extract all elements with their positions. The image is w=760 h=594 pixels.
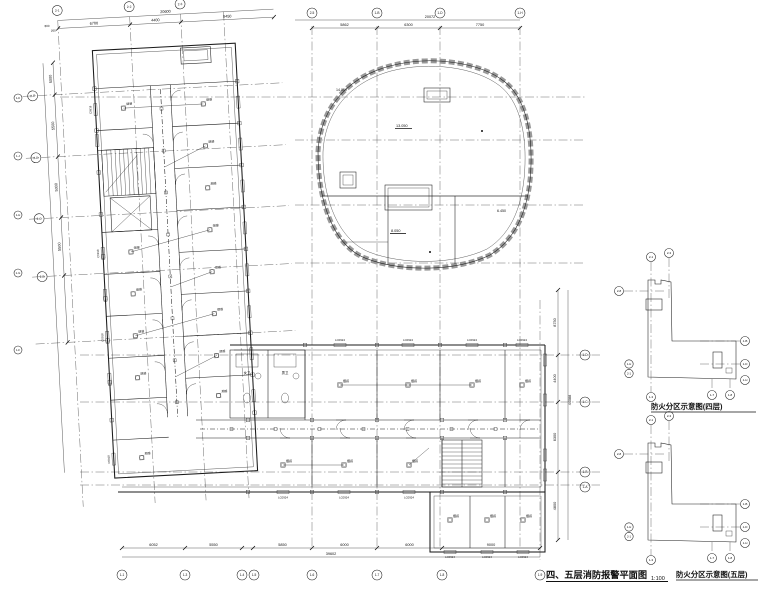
smoke-detector-label: 烟感 <box>217 306 223 311</box>
grid-bubble-label: 2-D <box>33 156 39 160</box>
zone-notch <box>726 368 732 373</box>
door-arc <box>175 174 186 185</box>
room-label: 男卫 <box>282 370 289 375</box>
stair-tread <box>132 149 134 195</box>
grid-line-skewed <box>181 14 206 500</box>
smoke-detector-label: 烟感 <box>412 458 418 463</box>
grid-bubble-label: 1-B <box>375 11 380 15</box>
fire-alarm-trunk <box>160 89 177 417</box>
stair-tread <box>119 149 121 195</box>
dimension-value: 6000 <box>340 543 348 547</box>
grid-bubble-label: 1-B <box>743 339 748 343</box>
dimension-value: 250 <box>51 29 57 33</box>
grid-bubble-label: 2-C <box>36 217 42 221</box>
dimension-value: 5862 <box>340 23 348 27</box>
smoke-detector-label: 烟感 <box>136 286 142 291</box>
top-left-dimension-chain: 206006700440084508002502-12-22-3 <box>43 0 276 33</box>
smoke-detector-label: 烟感 <box>206 96 212 101</box>
smoke-detector-icon <box>131 292 135 296</box>
sink <box>255 373 261 379</box>
fire-diagram-4f-title: 防火分区示意图(四层) <box>651 402 723 411</box>
skewed-grid <box>19 9 304 509</box>
north-wing-plan: 烟感烟感烟感烟感烟感烟感烟感烟感烟感烟感烟感烟感烟感烟感C0918C0918C0… <box>85 43 259 478</box>
grid-bubble-label: 2-3 <box>667 251 672 255</box>
partition <box>106 313 162 316</box>
room-label: 女卫 <box>244 370 251 375</box>
elevation-label: 6.450 <box>497 209 506 213</box>
smoke-detector-label: 烟感 <box>475 378 481 383</box>
bathroom-block <box>230 350 305 418</box>
grid-bubble-label: 1-D <box>437 11 443 15</box>
grid-bubble-label: 2-E <box>30 94 35 98</box>
dimension-value: 4400 <box>553 374 557 382</box>
smoke-detector-icon <box>212 311 217 316</box>
grid-bubble-label: 1-6 <box>310 573 315 577</box>
smoke-detector-icon <box>216 393 220 397</box>
smoke-detector-icon <box>139 455 144 460</box>
grid-bubble-label: 1-H <box>16 213 21 217</box>
partition <box>183 333 250 337</box>
dimension-value: 6052 <box>149 543 157 547</box>
smoke-detector-label: 烟感 <box>490 513 496 518</box>
smoke-detector-icon <box>214 353 219 358</box>
stair-marker <box>646 299 662 310</box>
grid-bubble-label: 2-B <box>40 275 45 279</box>
smoke-detector-label: 烟感 <box>144 450 150 455</box>
stair-tread <box>107 150 109 196</box>
grid-bubble-label: 1-5 <box>252 573 257 577</box>
stair-tread <box>123 149 125 195</box>
door-arc <box>179 258 190 269</box>
roof-hatch-box <box>340 172 356 188</box>
grid-bubble-label: 1-8 <box>440 573 445 577</box>
grid-bubble-label: 1-F <box>16 348 20 352</box>
grid-bubble-label: 2-1 <box>627 535 631 539</box>
dimension-value: 4800 <box>553 502 557 510</box>
roof-drain <box>481 130 483 132</box>
door-arc <box>182 300 193 311</box>
door-arc <box>470 428 480 438</box>
grid-bubble-label: 1-K <box>16 96 20 100</box>
door-arc <box>150 277 161 288</box>
smoke-detector-icon <box>216 393 221 398</box>
smoke-detector-icon <box>520 383 524 387</box>
grid-bubble-label: 2-5 <box>310 11 315 15</box>
roof-elevation-labels: 14.050 13.050 8.050 6.450 <box>336 88 506 234</box>
door-arc <box>143 134 154 145</box>
smoke-detector-label: 烟感 <box>347 458 353 463</box>
left-dimension-chain: 50005500500055002-E2-D2-C2-B <box>26 61 77 474</box>
zone-notch <box>726 531 732 536</box>
grid-bubble-label: 2-1 <box>649 255 654 259</box>
door-arc <box>171 90 182 101</box>
dimension-overall: 20072 <box>425 15 436 19</box>
grid-bubble-label: 1-9 <box>538 573 543 577</box>
grid-bubble-label: 1-7 <box>375 573 380 577</box>
smoke-detector-label: 烟感 <box>213 222 219 227</box>
smoke-detector-label: 烟感 <box>453 513 459 518</box>
dimension-value: 5550 <box>209 543 217 547</box>
dimension-value: 4400 <box>151 18 160 22</box>
smoke-detector-label: 烟感 <box>210 180 216 185</box>
partition <box>113 437 169 440</box>
smoke-detector-icon <box>448 518 452 522</box>
grid-bubbles: 2-51-B1-D1-H1-11-31-41-51-61-71-81-91-K1… <box>14 8 590 580</box>
partition <box>97 128 153 131</box>
grid-bubble-label: 1-3 <box>649 558 654 562</box>
grid-bubble-label: 2-2 <box>127 5 132 9</box>
dimension-value: 5500 <box>57 242 61 251</box>
door-arc <box>173 132 184 143</box>
grid-bubble-label: 1-D <box>582 353 588 357</box>
partition <box>108 355 164 358</box>
window-label: LC0924 <box>339 496 349 500</box>
smoke-detector-icon <box>485 518 489 522</box>
stair-tread <box>144 148 146 194</box>
smoke-detector-label: 烟感 <box>140 370 146 375</box>
smoke-detector-label: 烟感 <box>411 378 417 383</box>
dimension-value: 5000 <box>49 75 53 84</box>
door-arc <box>520 420 530 430</box>
grid-line-skewed <box>29 206 289 220</box>
door-arc <box>177 216 188 227</box>
roof-access-shaft <box>184 50 208 61</box>
fire-diagram-4f: 2-12-32-81-H2-11-31-71-81-B1-D1-H <box>615 249 750 402</box>
grid-bubble-label: 1-H <box>743 541 748 545</box>
dimension-value: 5500 <box>51 121 55 130</box>
grid-bubble-label: 1-1 <box>120 573 125 577</box>
toilet <box>282 393 289 403</box>
grid-bubble-label: 1-8 <box>728 393 733 397</box>
roof-hatch-box <box>424 88 450 102</box>
window-label: LC0924 <box>335 338 345 342</box>
stair-marker <box>713 352 722 368</box>
grid-bubble-label: 1-H <box>743 378 748 382</box>
smoke-detector-icon <box>485 518 489 522</box>
smoke-detector-label: 烟感 <box>219 348 225 353</box>
window-label: LC0924 <box>403 338 413 342</box>
window-label: C0918 <box>88 105 92 114</box>
dimension-value: 6700 <box>90 21 99 25</box>
grid-bubble-label: 1-3 <box>183 573 188 577</box>
grid-bubble-label: 2-8 <box>617 452 622 456</box>
dimension-value: 6000 <box>405 543 413 547</box>
door-arc <box>340 428 350 438</box>
grid-bubble-label: 1-H <box>627 525 632 529</box>
stair-tread <box>128 149 130 195</box>
window-label: LC0924 <box>278 496 288 500</box>
dimension-value: 6300 <box>404 23 412 27</box>
smoke-detector-label: 烟感 <box>138 328 144 333</box>
grid-bubble-label: 2-3 <box>667 414 672 418</box>
grid-line-skewed <box>26 145 286 159</box>
grid-bubble-label: 2-1 <box>627 372 631 376</box>
smoke-detector-icon <box>448 518 452 522</box>
window-label: LC0924 <box>517 338 527 342</box>
fire-diagram-5f: 2-12-32-81-H2-11-31-71-81-B1-D1-H <box>615 412 750 565</box>
stair-tread <box>115 150 117 196</box>
smoke-detector-icon <box>140 456 144 460</box>
sheet-title: 四、五层消防报警平面图 <box>546 569 647 580</box>
drawing-sheet: 烟感烟感烟感烟感烟感烟感烟感烟感烟感烟感烟感烟感烟感烟感C0918C0918C0… <box>0 0 760 594</box>
door-arc <box>406 428 416 438</box>
grid-bubble-label: 1-3 <box>649 395 654 399</box>
grid-bubble-label: 1-H <box>627 362 632 366</box>
roof-hatch-box <box>343 175 353 185</box>
title-block: 四、五层消防报警平面图 1:100 防火分区示意图(五层) 防火分区示意图(四层… <box>546 402 758 582</box>
grid-bubble-label: 1-A <box>583 485 589 489</box>
grid-bubble-label: 1-C <box>582 400 588 404</box>
dimension-value: 5000 <box>54 183 58 192</box>
roof-interior <box>318 60 534 270</box>
smoke-detector-label: 烟感 <box>343 378 349 383</box>
roof-outline <box>318 61 531 268</box>
dimension-value: 8450 <box>223 14 232 18</box>
fire-diagram-5f-title: 防火分区示意图(五层) <box>676 570 748 579</box>
dimension-value: 800 <box>44 24 50 28</box>
grid-bubble-label: 1-J <box>16 154 20 158</box>
smoke-detector-label: 烟感 <box>208 138 214 143</box>
shower-stall <box>274 354 296 367</box>
shower-stall <box>236 354 258 367</box>
stair-marker <box>646 462 662 473</box>
grid-line-skewed <box>32 264 292 278</box>
dimension-overall: 39602 <box>326 552 337 556</box>
door-arc <box>184 342 195 353</box>
dimension-value: 9000 <box>487 543 495 547</box>
window-label: C0918 <box>100 333 104 342</box>
dimension-overall: 20600 <box>160 10 171 15</box>
smoke-detector-label: 烟感 <box>286 458 292 463</box>
grid-bubble-label: 2-1 <box>55 9 60 13</box>
elevation-label: 8.050 <box>391 229 401 233</box>
grid-bubble-label: 2-3 <box>178 2 183 6</box>
smoke-detector-icon <box>205 186 210 191</box>
smoke-detector-icon <box>210 269 215 274</box>
partition <box>111 397 167 400</box>
smoke-detector-label: 烟感 <box>134 244 140 249</box>
smoke-detector-icon <box>521 518 525 522</box>
stair-tread <box>140 148 142 194</box>
door-arc <box>468 420 478 430</box>
detector-wiring <box>283 385 472 465</box>
door-arc <box>336 420 346 430</box>
grid-bubble-label: 2-8 <box>617 289 622 293</box>
grid-bubble-label: 1-7 <box>710 556 715 560</box>
stair-marker <box>713 515 722 531</box>
dimension-chains: 206006700440084508002502-12-22-320072586… <box>26 0 572 557</box>
grid-bubble-label: 1-D <box>743 525 749 529</box>
grid-line-skewed <box>36 330 296 344</box>
grid-bubble-label: 1-D <box>743 362 749 366</box>
window-label: LC0924 <box>467 338 477 342</box>
cad-canvas: 烟感烟感烟感烟感烟感烟感烟感烟感烟感烟感烟感烟感烟感烟感C0918C0918C0… <box>0 0 760 594</box>
smoke-detector-icon <box>135 375 140 380</box>
grid-bubble-label: 2-1 <box>649 418 654 422</box>
door-arc <box>157 403 168 414</box>
grid-bubble-label: 1-G <box>16 271 21 275</box>
roof-equipment-box <box>385 185 432 210</box>
door-arc <box>155 361 166 372</box>
dimension-value: 6300 <box>553 433 557 441</box>
smoke-detector-label: 烟感 <box>215 264 221 269</box>
smoke-detector-icon <box>135 376 139 380</box>
dimension-value: 8750 <box>553 318 557 326</box>
sink <box>293 373 299 379</box>
south-wing-plan: 女卫男卫烟感烟感烟感烟感烟感烟感烟感烟感LC0924烟感LC0924烟感LC09… <box>118 338 547 559</box>
smoke-detector-label: 烟感 <box>221 388 227 393</box>
stair-arrow <box>104 154 140 192</box>
smoke-detector-label: 烟感 <box>526 513 532 518</box>
smoke-detector-icon <box>521 518 525 522</box>
roof-shingle-ring <box>318 61 531 268</box>
dimension-value: 7750 <box>476 23 484 27</box>
smoke-detector-label: 烟感 <box>126 101 132 106</box>
grid-bubble-label: 1-7 <box>710 393 715 397</box>
window-label: LC0924 <box>404 496 414 500</box>
partition <box>94 81 237 88</box>
window-label: C0918 <box>96 249 100 258</box>
grid-line-skewed <box>58 20 83 506</box>
dimension-overall: 44088 <box>568 395 572 406</box>
roof-drain <box>429 251 431 253</box>
roof-plan <box>318 60 534 270</box>
dimension-value: 5850 <box>278 543 286 547</box>
elevation-label: 14.050 <box>336 88 347 92</box>
grid-bubble-label: 1-4 <box>240 573 245 577</box>
elevation-label: 13.050 <box>396 124 408 128</box>
roof-equipment-box <box>388 188 429 207</box>
grid-bubble-label: 1-B <box>583 470 588 474</box>
smoke-detector-icon <box>206 186 210 190</box>
grid-bubble-label: 1-H <box>517 11 523 15</box>
stair-tread <box>111 150 113 196</box>
stair-tread <box>149 148 151 194</box>
grid-bubble-label: 1-8 <box>728 556 733 560</box>
grid-line-skewed <box>23 83 283 97</box>
dimension-line <box>53 63 68 343</box>
roof-hatch-box <box>427 91 447 99</box>
door-arc <box>186 384 197 395</box>
smoke-detector-label: 烟感 <box>525 378 531 383</box>
wing-outer-wall <box>92 43 257 478</box>
elevator-x <box>110 196 152 232</box>
smoke-detector-icon <box>131 292 136 297</box>
grid-bubble-label: 1-B <box>743 502 748 506</box>
door-arc <box>280 428 290 438</box>
window-label: C0918 <box>107 455 111 464</box>
smoke-detector-icon <box>520 383 524 387</box>
